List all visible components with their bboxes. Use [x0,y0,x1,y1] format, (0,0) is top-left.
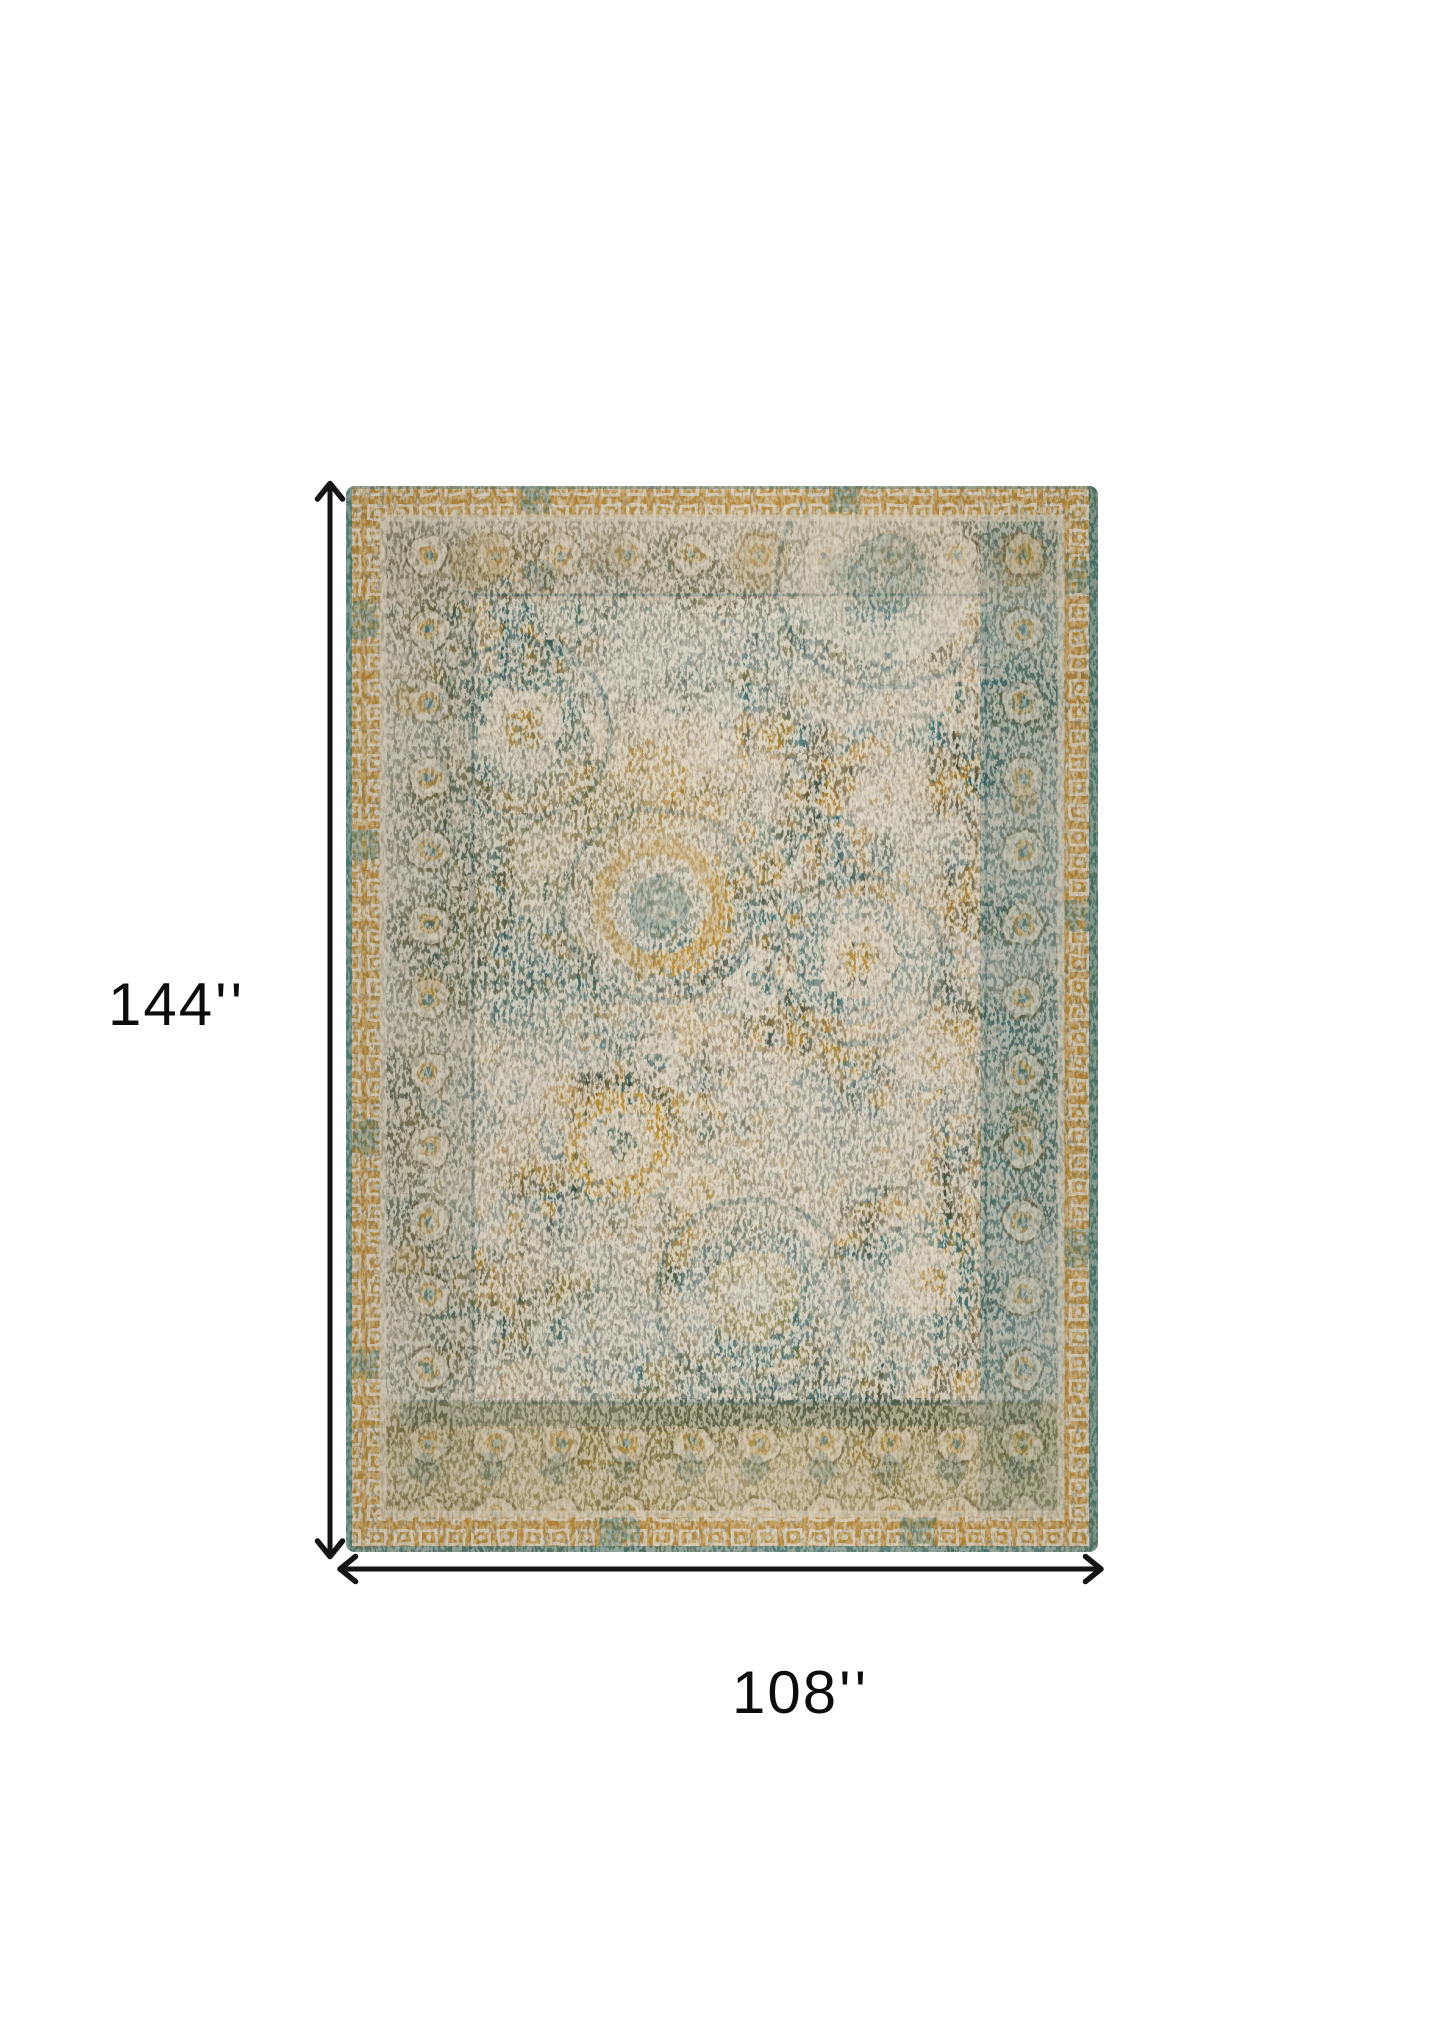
svg-text:108'': 108'' [732,1659,870,1726]
svg-text:144'': 144'' [108,971,246,1038]
